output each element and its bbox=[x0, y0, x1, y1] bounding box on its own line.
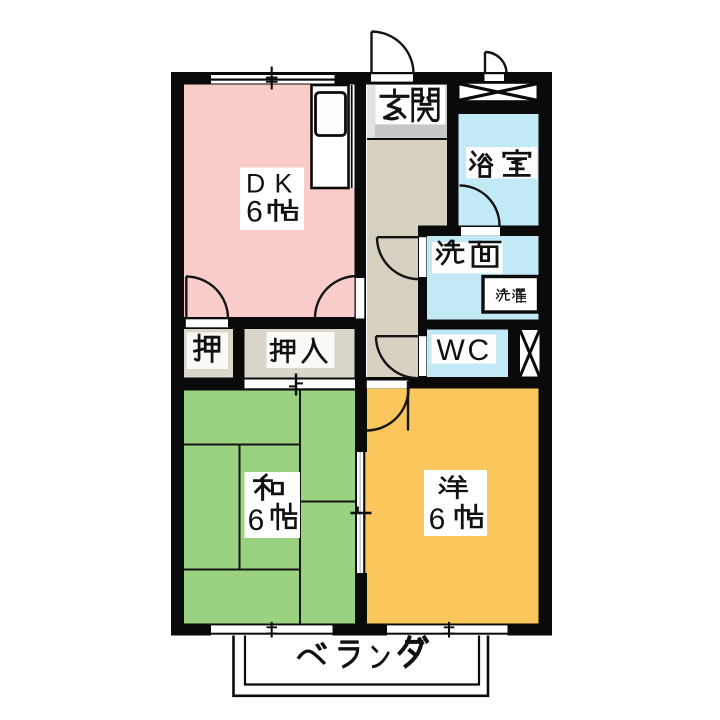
svg-text:6: 6 bbox=[246, 196, 263, 229]
svg-text:C: C bbox=[468, 334, 490, 367]
svg-text:W: W bbox=[437, 334, 466, 367]
svg-text:6: 6 bbox=[248, 504, 265, 537]
svg-text:6: 6 bbox=[429, 503, 446, 536]
svg-text:D: D bbox=[246, 168, 265, 198]
svg-text:K: K bbox=[275, 168, 293, 198]
